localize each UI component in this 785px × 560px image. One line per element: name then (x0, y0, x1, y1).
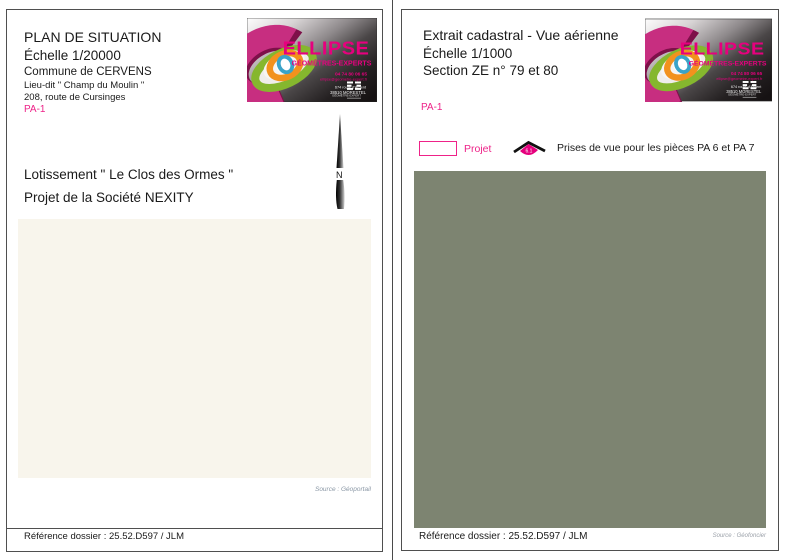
svg-text:ELLIPSE: ELLIPSE (283, 39, 370, 59)
svg-text:N: N (336, 170, 343, 180)
svg-text:6.1: 6.1 (526, 149, 533, 155)
svg-text:GÉOMÈTRE-EXPERT: GÉOMÈTRE-EXPERT (332, 93, 361, 98)
svg-text:GÉOMÈTRES-EXPERTS: GÉOMÈTRES-EXPERTS (292, 59, 372, 68)
svg-text:ellipse@geometre-expert.fr: ellipse@geometre-expert.fr (320, 77, 368, 82)
